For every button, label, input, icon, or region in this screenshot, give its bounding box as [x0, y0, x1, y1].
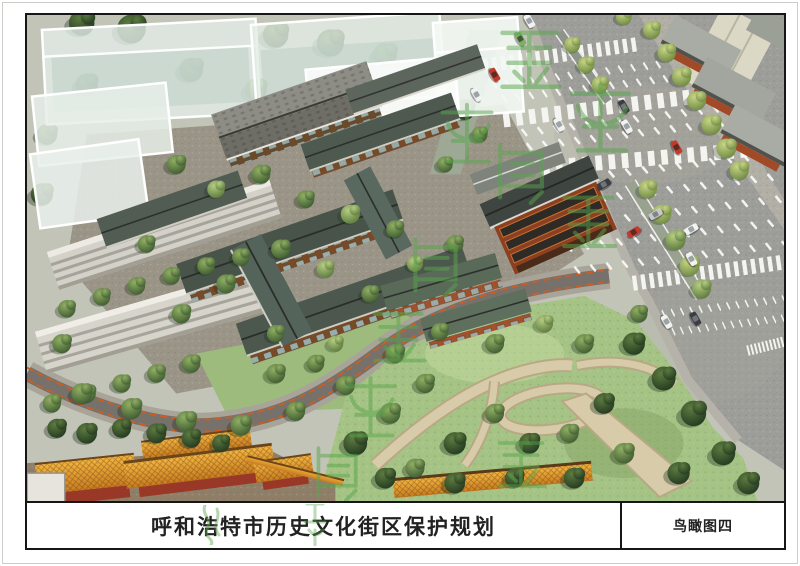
aerial-rendering: [27, 15, 784, 503]
title-block: 呼和浩特市历史文化街区保护规划 鸟瞰图四: [27, 501, 784, 548]
title-cell: 呼和浩特市历史文化街区保护规划: [27, 503, 620, 548]
rendering-scene: [27, 15, 784, 503]
rendering-frame: 呼和浩特市历史文化街区保护规划 鸟瞰图四: [25, 13, 786, 550]
sheet-label-cell: 鸟瞰图四: [622, 503, 784, 548]
sheet-label: 鸟瞰图四: [673, 516, 733, 536]
project-title: 呼和浩特市历史文化街区保护规划: [151, 511, 496, 541]
presentation-board: { "sheet": { "title_bar": { "project_tit…: [0, 0, 800, 566]
